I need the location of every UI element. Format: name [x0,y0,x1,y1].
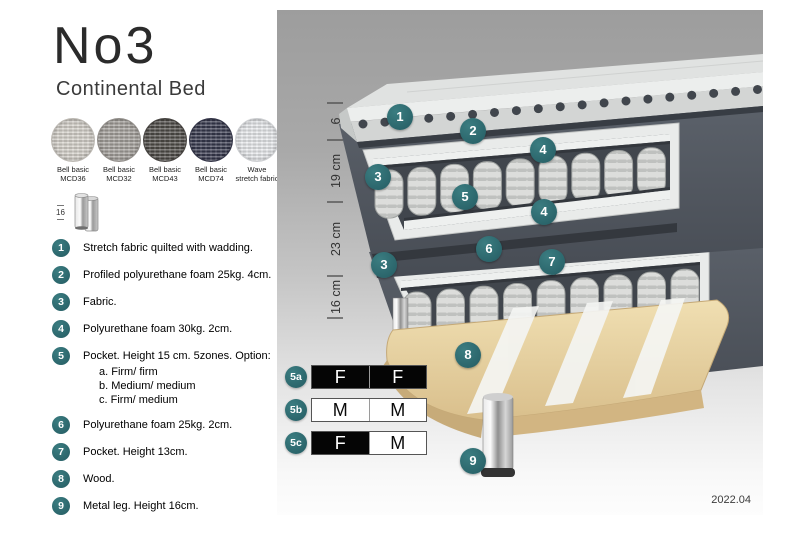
legend-item-text: Profiled polyurethane foam 25kg. 4cm. [83,266,271,284]
fabric-swatch-icon [143,118,187,162]
fabric-swatch-icon [97,118,141,162]
legend-number-badge: 2 [52,266,70,284]
firmness-cell: M [369,399,427,421]
swatch-label: Wavestretch fabric [236,165,279,183]
legend-number-badge: 7 [52,443,70,461]
firmness-badge: 5b [285,399,307,421]
firmness-badge: 5a [285,366,307,388]
fabric-swatch-icon [189,118,233,162]
firmness-table: 5a F F 5b M M 5c F M [285,366,427,465]
firmness-bar: M M [311,398,427,422]
version-stamp: 2022.04 [711,494,751,506]
firmness-cell: M [312,399,369,421]
callout-badge-4-upper: 4 [530,137,556,163]
legend-number-badge: 8 [52,470,70,488]
legend-item-7: 7 Pocket. Height 13cm. [52,443,274,461]
legend-item-6: 6 Polyurethane foam 25kg. 2cm. [52,416,274,434]
callout-badge-7: 7 [539,249,565,275]
diagram-panel: 6 19 cm 23 cm 16 cm [277,10,763,515]
callout-badge-9: 9 [460,448,486,474]
firmness-row-5a: 5a F F [285,366,427,388]
fabric-swatch-icon [51,118,95,162]
leg-height-figure: 16 [56,190,111,234]
dimension-label-leg: 16 cm [329,280,343,314]
swatch-mcd74: Bell basicMCD74 [188,118,234,183]
legend-item-1: 1 Stretch fabric quilted with wadding. [52,239,274,257]
legend-list: 1 Stretch fabric quilted with wadding. 2… [52,239,274,524]
firmness-bar: F F [311,365,427,389]
legend-item-text: Wood. [83,470,115,488]
legend-number-badge: 4 [52,320,70,338]
product-title: No3 [53,16,157,76]
firmness-cell: F [312,432,369,454]
legend-number-badge: 6 [52,416,70,434]
firmness-row-5c: 5c F M [285,432,427,454]
legend-item-text: Pocket. Height 13cm. [83,443,188,461]
swatch-label: Bell basicMCD43 [149,165,181,183]
pocket-options: a. Firm/ firm b. Medium/ medium c. Firm/… [99,365,271,407]
swatch-label: Bell basicMCD74 [195,165,227,183]
legend-number-badge: 3 [52,293,70,311]
swatch-wave-stretch: Wavestretch fabric [234,118,280,183]
legend-item-4: 4 Polyurethane foam 30kg. 2cm. [52,320,274,338]
metal-legs-icon [69,190,111,234]
legend-item-text: Stretch fabric quilted with wadding. [83,239,253,257]
callout-badge-3-lower: 3 [371,252,397,278]
swatch-mcd43: Bell basicMCD43 [142,118,188,183]
callout-badge-2: 2 [460,118,486,144]
legend-number-badge: 1 [52,239,70,257]
callout-badge-6: 6 [476,236,502,262]
front-leg [481,393,515,477]
swatch-mcd36: Bell basicMCD36 [50,118,96,183]
dimension-label-upper: 19 cm [329,154,343,188]
callout-badge-1: 1 [387,104,413,130]
swatch-mcd32: Bell basicMCD32 [96,118,142,183]
firmness-row-5b: 5b M M [285,399,427,421]
legend-item-8: 8 Wood. [52,470,274,488]
pocket-option-c: c. Firm/ medium [99,393,271,407]
fabric-swatches: Bell basicMCD36 Bell basicMCD32 Bell bas… [50,118,280,183]
product-subtitle: Continental Bed [56,78,206,101]
legend-number-badge: 5 [52,347,70,365]
pocket-option-a: a. Firm/ firm [99,365,271,379]
leg-height-value: 16 [56,208,65,217]
legend-item-2: 2 Profiled polyurethane foam 25kg. 4cm. [52,266,274,284]
legend-item-text: Pocket. Height 15 cm. 5zones. Option: a.… [83,347,271,407]
legend-item-3: 3 Fabric. [52,293,274,311]
firmness-cell: F [312,366,369,388]
legend-item-text: Fabric. [83,293,117,311]
pocket-option-b: b. Medium/ medium [99,379,271,393]
fabric-swatch-icon [235,118,279,162]
spec-sheet: No3 Continental Bed Bell basicMCD36 Bell… [0,0,800,533]
callout-badge-4-lower: 4 [531,199,557,225]
legend-item-text: Metal leg. Height 16cm. [83,497,199,515]
firmness-cell: F [369,366,427,388]
callout-badge-5: 5 [452,184,478,210]
firmness-cell: M [369,432,427,454]
firmness-badge: 5c [285,432,307,454]
dimension-label-base: 23 cm [329,222,343,256]
firmness-bar: F M [311,431,427,455]
legend-item-9: 9 Metal leg. Height 16cm. [52,497,274,515]
leg-height-dimension: 16 [56,203,65,222]
legend-item-text: Polyurethane foam 25kg. 2cm. [83,416,232,434]
legend-item-text: Polyurethane foam 30kg. 2cm. [83,320,232,338]
legend-number-badge: 9 [52,497,70,515]
callout-badge-8: 8 [455,342,481,368]
legend-item-5: 5 Pocket. Height 15 cm. 5zones. Option: … [52,347,274,407]
callout-badge-3-upper: 3 [365,164,391,190]
swatch-label: Bell basicMCD32 [103,165,135,183]
swatch-label: Bell basicMCD36 [57,165,89,183]
